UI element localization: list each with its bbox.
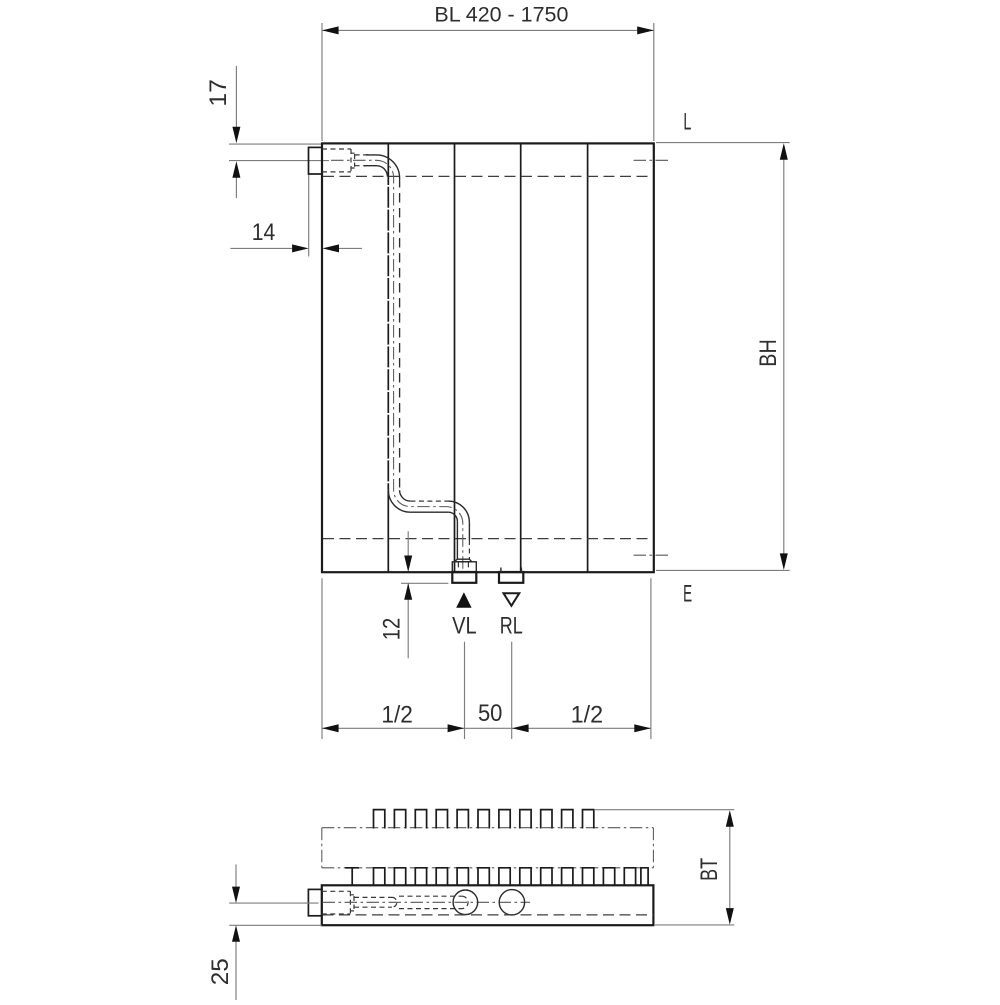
svg-text:50: 50 xyxy=(478,700,503,727)
svg-text:12: 12 xyxy=(378,618,405,641)
svg-text:BH: BH xyxy=(755,339,782,367)
svg-text:E: E xyxy=(683,581,692,608)
svg-text:VL: VL xyxy=(452,613,477,640)
svg-text:14: 14 xyxy=(252,219,276,246)
svg-text:L: L xyxy=(683,109,691,136)
svg-text:1/2: 1/2 xyxy=(571,701,604,728)
svg-text:1/2: 1/2 xyxy=(381,701,413,728)
svg-text:RL: RL xyxy=(500,613,523,640)
svg-text:17: 17 xyxy=(205,79,232,107)
svg-text:BT: BT xyxy=(696,858,723,881)
svg-text:BL 420 - 1750: BL 420 - 1750 xyxy=(434,3,568,27)
svg-text:25: 25 xyxy=(207,958,234,985)
